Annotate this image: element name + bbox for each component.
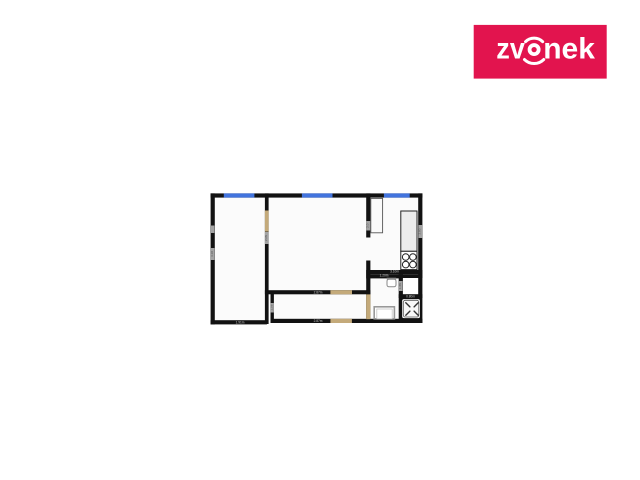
- svg-text:1.20m: 1.20m: [380, 274, 389, 278]
- svg-text:1.55: 1.55: [398, 283, 402, 289]
- svg-text:nek: nek: [543, 32, 595, 65]
- svg-text:2.60: 2.60: [418, 228, 422, 234]
- svg-text:0.80m: 0.80m: [406, 294, 415, 298]
- svg-text:1.06: 1.06: [269, 304, 273, 310]
- svg-text:1.91m: 1.91m: [236, 321, 245, 325]
- svg-text:3.10m: 3.10m: [390, 270, 399, 274]
- svg-text:4.18: 4.18: [210, 251, 214, 257]
- svg-text:2.87m: 2.87m: [314, 319, 323, 323]
- svg-text:2.87m: 2.87m: [314, 290, 323, 294]
- svg-text:2.05: 2.05: [264, 235, 268, 241]
- svg-text:zv: zv: [496, 32, 525, 65]
- svg-text:2.0: 2.0: [366, 223, 370, 228]
